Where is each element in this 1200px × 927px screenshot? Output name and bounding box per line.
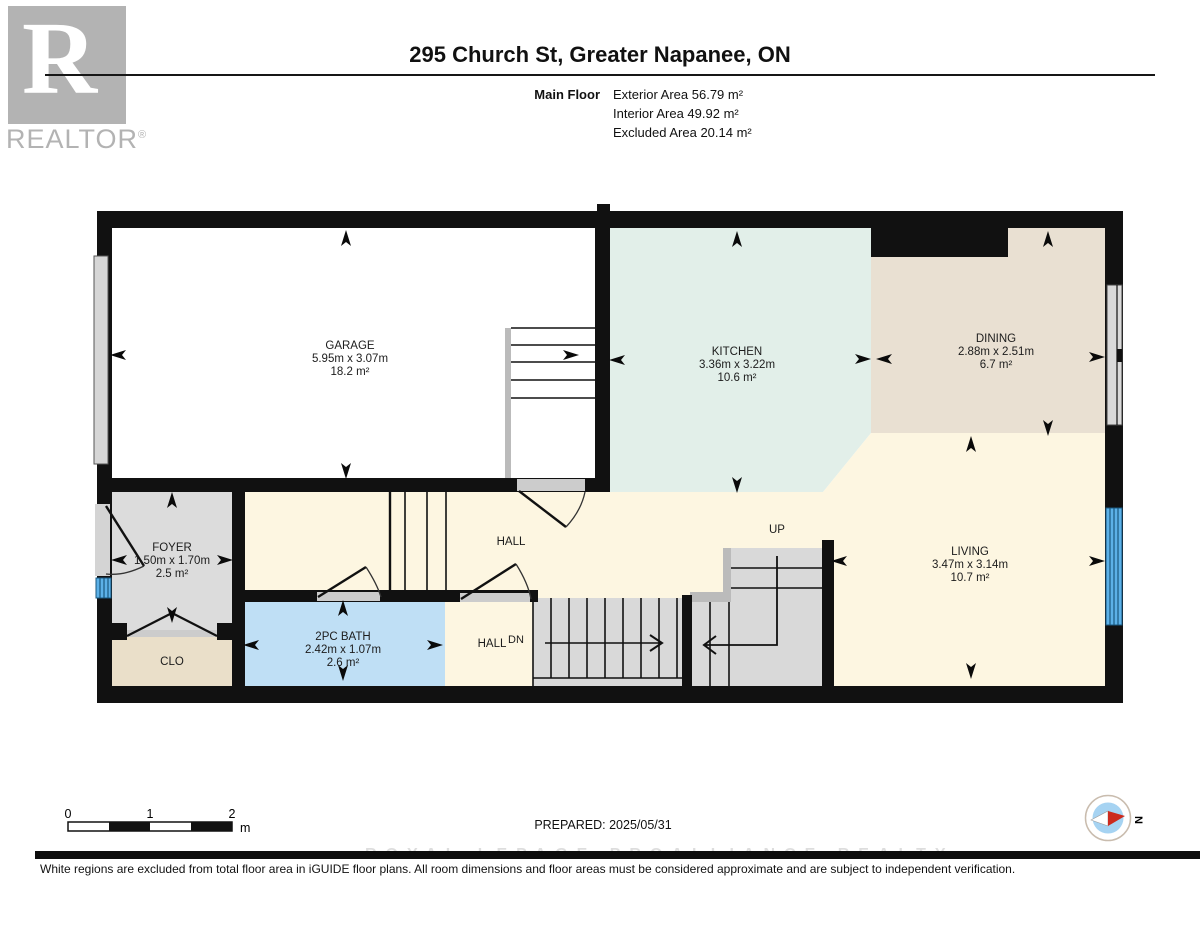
hall-upper-label: HALL: [497, 536, 526, 548]
garage-label: GARAGE: [325, 340, 375, 352]
living-dims: 3.47m x 3.14m: [932, 559, 1008, 571]
foyer-dims: 1.50m x 1.70m: [134, 555, 210, 567]
compass-icon: N: [1086, 796, 1145, 841]
closet-label: CLO: [160, 656, 184, 668]
dining-window: [1107, 285, 1122, 425]
garage-area: 18.2 m²: [331, 366, 370, 378]
garage-stairs-door-sill: [517, 479, 585, 491]
garage-door: [94, 256, 108, 464]
kitchen-area: 10.6 m²: [718, 372, 757, 384]
bath-area: 2.6 m²: [327, 657, 360, 669]
hall-lower-label: HALL: [478, 638, 507, 650]
scale-tick-1: 1: [147, 807, 154, 821]
dining-dims: 2.88m x 2.51m: [958, 346, 1034, 358]
disclaimer-text: White regions are excluded from total fl…: [40, 862, 1200, 876]
floor-plan: GARAGE 5.95m x 3.07m 18.2 m² KITCHEN 3.3…: [0, 0, 1200, 927]
living-label: LIVING: [951, 546, 989, 558]
living-area: 10.7 m²: [951, 572, 990, 584]
foyer-label: FOYER: [152, 542, 192, 554]
foyer-area: 2.5 m²: [156, 568, 189, 580]
bath-dims: 2.42m x 1.07m: [305, 644, 381, 656]
garage-dims: 5.95m x 3.07m: [312, 353, 388, 365]
bath-door-sill: [317, 592, 380, 601]
scale-tick-2: 2: [229, 807, 236, 821]
dining-area: 6.7 m²: [980, 359, 1013, 371]
compass-north-label: N: [1132, 816, 1144, 824]
foyer-window: [96, 578, 111, 598]
living-window: [1106, 508, 1122, 625]
stairs-dn-label: DN: [508, 634, 524, 646]
kitchen-dims: 3.36m x 3.22m: [699, 359, 775, 371]
kitchen-label: KITCHEN: [712, 346, 762, 358]
bath-label: 2PC BATH: [315, 631, 370, 643]
dining-room: [871, 228, 1105, 433]
prepared-date: PREPARED: 2025/05/31: [503, 818, 703, 832]
disclaimer-divider: [35, 851, 1200, 859]
closet-door-sill: [127, 630, 217, 637]
scale-bar: 0 1 2 m: [65, 807, 251, 835]
scale-tick-0: 0: [65, 807, 72, 821]
front-door-sill: [95, 504, 110, 576]
dining-label: DINING: [976, 333, 1016, 345]
stairs-up-label: UP: [769, 524, 785, 536]
scale-unit: m: [240, 821, 250, 835]
